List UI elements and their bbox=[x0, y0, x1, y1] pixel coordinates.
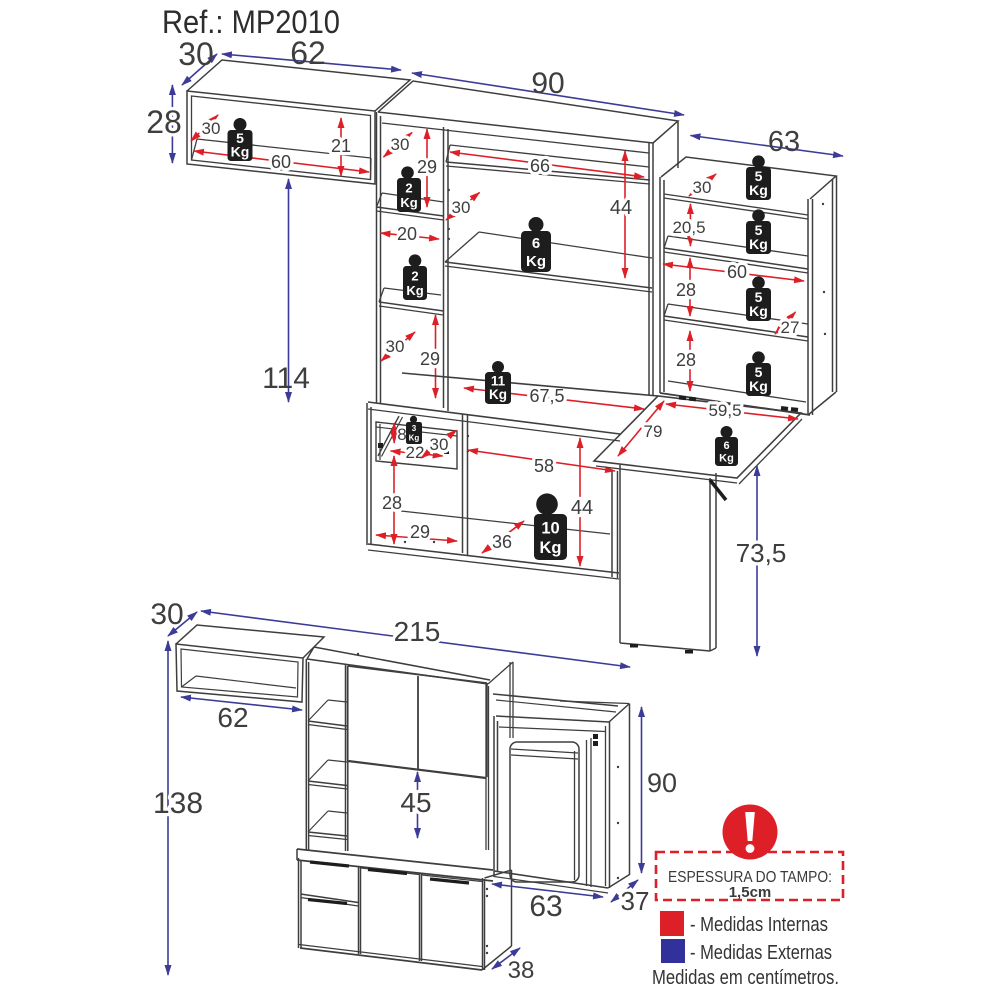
svg-text:45: 45 bbox=[400, 787, 431, 818]
svg-text:20: 20 bbox=[397, 224, 417, 244]
svg-text:10: 10 bbox=[541, 519, 559, 537]
svg-text:22: 22 bbox=[406, 443, 425, 462]
svg-text:Kg: Kg bbox=[231, 143, 250, 159]
svg-text:90: 90 bbox=[647, 768, 677, 798]
svg-text:30: 30 bbox=[202, 119, 221, 138]
svg-text:27: 27 bbox=[781, 318, 800, 337]
svg-text:2: 2 bbox=[411, 268, 418, 283]
svg-text:Kg: Kg bbox=[749, 303, 768, 319]
svg-text:Kg: Kg bbox=[400, 195, 417, 210]
svg-text:60: 60 bbox=[271, 152, 291, 172]
svg-text:8: 8 bbox=[397, 425, 406, 444]
svg-text:59,5: 59,5 bbox=[708, 401, 741, 420]
svg-text:60: 60 bbox=[727, 262, 747, 282]
svg-text:Kg: Kg bbox=[749, 378, 768, 394]
svg-text:2: 2 bbox=[405, 180, 412, 195]
svg-text:29: 29 bbox=[417, 157, 437, 177]
svg-text:58: 58 bbox=[534, 456, 554, 476]
svg-text:30: 30 bbox=[391, 135, 410, 154]
svg-text:114: 114 bbox=[262, 362, 310, 395]
svg-text:30: 30 bbox=[452, 198, 471, 217]
svg-text:6: 6 bbox=[532, 235, 540, 252]
svg-text:44: 44 bbox=[610, 197, 632, 219]
svg-text:63: 63 bbox=[768, 126, 800, 158]
svg-text:215: 215 bbox=[394, 616, 441, 647]
svg-text:66: 66 bbox=[530, 156, 550, 176]
svg-text:90: 90 bbox=[531, 67, 564, 100]
svg-text:44: 44 bbox=[571, 497, 593, 519]
svg-text:Kg: Kg bbox=[540, 539, 562, 557]
svg-text:30: 30 bbox=[386, 337, 405, 356]
svg-text:1,5cm: 1,5cm bbox=[729, 884, 772, 901]
svg-text:37: 37 bbox=[621, 886, 650, 916]
svg-text:79: 79 bbox=[644, 422, 663, 441]
svg-text:Kg: Kg bbox=[749, 182, 768, 198]
svg-text:Kg: Kg bbox=[526, 253, 546, 270]
svg-text:Kg: Kg bbox=[409, 434, 420, 443]
svg-text:67,5: 67,5 bbox=[529, 386, 564, 406]
svg-text:Kg: Kg bbox=[719, 453, 734, 465]
svg-text:28: 28 bbox=[676, 350, 696, 370]
svg-text:36: 36 bbox=[492, 532, 512, 552]
svg-text:28: 28 bbox=[146, 104, 182, 140]
svg-text:38: 38 bbox=[508, 957, 535, 984]
svg-text:138: 138 bbox=[153, 787, 203, 820]
svg-text:62: 62 bbox=[217, 702, 248, 733]
svg-text:28: 28 bbox=[676, 280, 696, 300]
svg-text:Kg: Kg bbox=[406, 283, 423, 298]
svg-text:6: 6 bbox=[723, 440, 729, 452]
svg-text:63: 63 bbox=[529, 890, 562, 923]
svg-text:29: 29 bbox=[410, 522, 430, 542]
svg-text:30: 30 bbox=[430, 435, 449, 454]
svg-text:Medidas em centímetros.: Medidas em centímetros. bbox=[652, 967, 839, 989]
svg-text:30: 30 bbox=[150, 598, 183, 631]
svg-text:62: 62 bbox=[290, 35, 326, 71]
svg-text:73,5: 73,5 bbox=[736, 538, 787, 568]
svg-text:11: 11 bbox=[491, 373, 506, 388]
svg-text:30: 30 bbox=[178, 36, 214, 72]
svg-text:Kg: Kg bbox=[489, 387, 507, 402]
svg-text:- Medidas Externas: - Medidas Externas bbox=[690, 942, 832, 964]
svg-text:28: 28 bbox=[382, 493, 402, 513]
svg-text:29: 29 bbox=[420, 349, 440, 369]
svg-text:Kg: Kg bbox=[749, 236, 768, 252]
svg-text:21: 21 bbox=[331, 136, 351, 156]
svg-text:3: 3 bbox=[412, 424, 417, 433]
svg-text:- Medidas Internas: - Medidas Internas bbox=[690, 914, 828, 936]
svg-text:20,5: 20,5 bbox=[672, 218, 705, 237]
svg-text:30: 30 bbox=[693, 178, 712, 197]
